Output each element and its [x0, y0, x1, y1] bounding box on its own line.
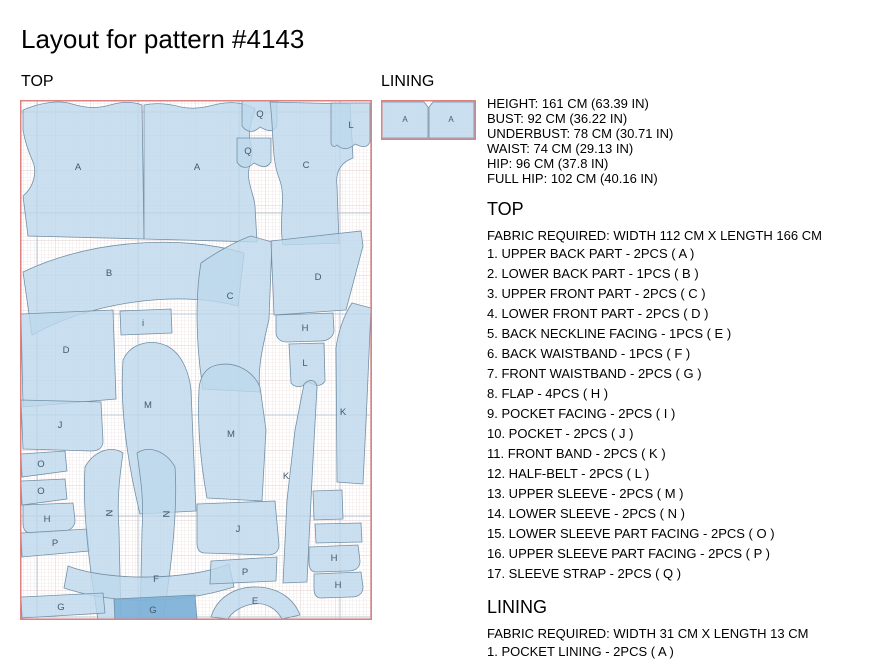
top-item-line: 13. UPPER SLEEVE - 2PCS ( M ) — [487, 484, 882, 504]
piece-letter-H: H — [331, 553, 338, 564]
piece-letter-O: O — [37, 459, 44, 470]
top-section-label: TOP — [21, 73, 54, 91]
top-item-line: 8. FLAP - 4PCS ( H ) — [487, 384, 882, 404]
pattern-piece-D — [21, 310, 116, 407]
piece-letter-H: H — [335, 580, 342, 591]
top-layout-svg: AAQQCLBCDHLiDMMJOOKKHPNNFGGJPEHH — [20, 100, 372, 620]
measurements-list: HEIGHT: 161 CM (63.39 IN)BUST: 92 CM (36… — [487, 96, 882, 186]
piece-letter-F: F — [153, 574, 159, 585]
piece-letter-M: M — [227, 429, 235, 440]
lining-layout-svg: AA — [381, 100, 476, 140]
piece-letter-P: P — [242, 567, 248, 578]
piece-letter-J: J — [236, 524, 241, 535]
top-item-line: 9. POCKET FACING - 2PCS ( I ) — [487, 404, 882, 424]
top-item-line: 2. LOWER BACK PART - 1PCS ( B ) — [487, 264, 882, 284]
measurement-line: WAIST: 74 CM (29.13 IN) — [487, 141, 882, 156]
piece-letter-D: D — [63, 345, 70, 356]
piece-letter-A: A — [448, 115, 454, 124]
top-item-line: 12. HALF-BELT - 2PCS ( L ) — [487, 464, 882, 484]
lining-section-label: LINING — [381, 73, 434, 91]
piece-letter-K: K — [283, 471, 290, 482]
pattern-layout-page: { "title": "Layout for pattern #4143", "… — [0, 0, 889, 642]
piece-letter-L: L — [302, 358, 307, 369]
pattern-piece-i — [120, 309, 172, 335]
piece-letter-C: C — [303, 160, 310, 171]
top-item-line: 3. UPPER FRONT PART - 2PCS ( C ) — [487, 284, 882, 304]
piece-letter-A: A — [194, 162, 201, 173]
measurement-line: FULL HIP: 102 CM (40.16 IN) — [487, 171, 882, 186]
piece-letter-Q: Q — [244, 146, 251, 157]
lining-fabric-layout: AA — [381, 100, 476, 140]
details-column: HEIGHT: 161 CM (63.39 IN)BUST: 92 CM (36… — [487, 96, 882, 662]
piece-letter-M: M — [144, 400, 152, 411]
lining-items-list: 1. POCKET LINING - 2PCS ( A ) — [487, 642, 882, 662]
measurement-line: HEIGHT: 161 CM (63.39 IN) — [487, 96, 882, 111]
top-details-heading: TOP — [487, 199, 882, 220]
piece-letter-K: K — [340, 407, 347, 418]
piece-letter-H: H — [44, 514, 51, 525]
top-item-line: 11. FRONT BAND - 2PCS ( K ) — [487, 444, 882, 464]
piece-letter-N: N — [103, 510, 114, 517]
piece-letter-Q: Q — [256, 109, 263, 120]
piece-letter-P: P — [52, 538, 58, 549]
top-item-line: 1. UPPER BACK PART - 2PCS ( A ) — [487, 244, 882, 264]
measurement-line: HIP: 96 CM (37.8 IN) — [487, 156, 882, 171]
top-item-line: 16. UPPER SLEEVE PART FACING - 2PCS ( P … — [487, 544, 882, 564]
piece-letter-G: G — [149, 605, 156, 616]
lining-details-heading: LINING — [487, 597, 882, 618]
pattern-piece — [313, 490, 343, 520]
piece-letter-H: H — [302, 323, 309, 334]
piece-letter-B: B — [106, 268, 112, 279]
top-item-line: 14. LOWER SLEEVE - 2PCS ( N ) — [487, 504, 882, 524]
top-items-list: 1. UPPER BACK PART - 2PCS ( A )2. LOWER … — [487, 244, 882, 584]
piece-letter-E: E — [252, 596, 258, 607]
piece-letter-G: G — [57, 602, 64, 613]
top-item-line: 7. FRONT WAISTBAND - 2PCS ( G ) — [487, 364, 882, 384]
piece-letter-N: N — [160, 511, 171, 518]
piece-letter-D: D — [315, 272, 322, 283]
pattern-piece-A — [144, 103, 257, 242]
measurement-line: UNDERBUST: 78 CM (30.71 IN) — [487, 126, 882, 141]
top-item-line: 10. POCKET - 2PCS ( J ) — [487, 424, 882, 444]
piece-letter-J: J — [58, 420, 63, 431]
pattern-piece-A — [23, 102, 144, 239]
piece-letter-A: A — [75, 162, 82, 173]
piece-letter-C: C — [227, 291, 234, 302]
pattern-piece — [315, 523, 362, 543]
piece-letter-i: i — [142, 318, 144, 329]
top-item-line: 4. LOWER FRONT PART - 2PCS ( D ) — [487, 304, 882, 324]
measurement-line: BUST: 92 CM (36.22 IN) — [487, 111, 882, 126]
piece-letter-A: A — [402, 115, 408, 124]
piece-letter-L: L — [348, 120, 353, 131]
top-item-line: 6. BACK WAISTBAND - 1PCS ( F ) — [487, 344, 882, 364]
top-item-line: 17. SLEEVE STRAP - 2PCS ( Q ) — [487, 564, 882, 584]
top-item-line: 5. BACK NECKLINE FACING - 1PCS ( E ) — [487, 324, 882, 344]
top-item-line: 15. LOWER SLEEVE PART FACING - 2PCS ( O … — [487, 524, 882, 544]
top-fabric-layout: AAQQCLBCDHLiDMMJOOKKHPNNFGGJPEHH — [20, 100, 372, 620]
lining-fabric-required: FABRIC REQUIRED: WIDTH 31 CM X LENGTH 13… — [487, 625, 882, 642]
piece-letter-O: O — [37, 486, 44, 497]
top-fabric-required: FABRIC REQUIRED: WIDTH 112 CM X LENGTH 1… — [487, 227, 882, 244]
lining-item-line: 1. POCKET LINING - 2PCS ( A ) — [487, 642, 882, 662]
lining-pattern-pieces-group: AA — [382, 102, 474, 138]
page-title: Layout for pattern #4143 — [21, 24, 304, 55]
pattern-piece-Q — [237, 138, 271, 167]
